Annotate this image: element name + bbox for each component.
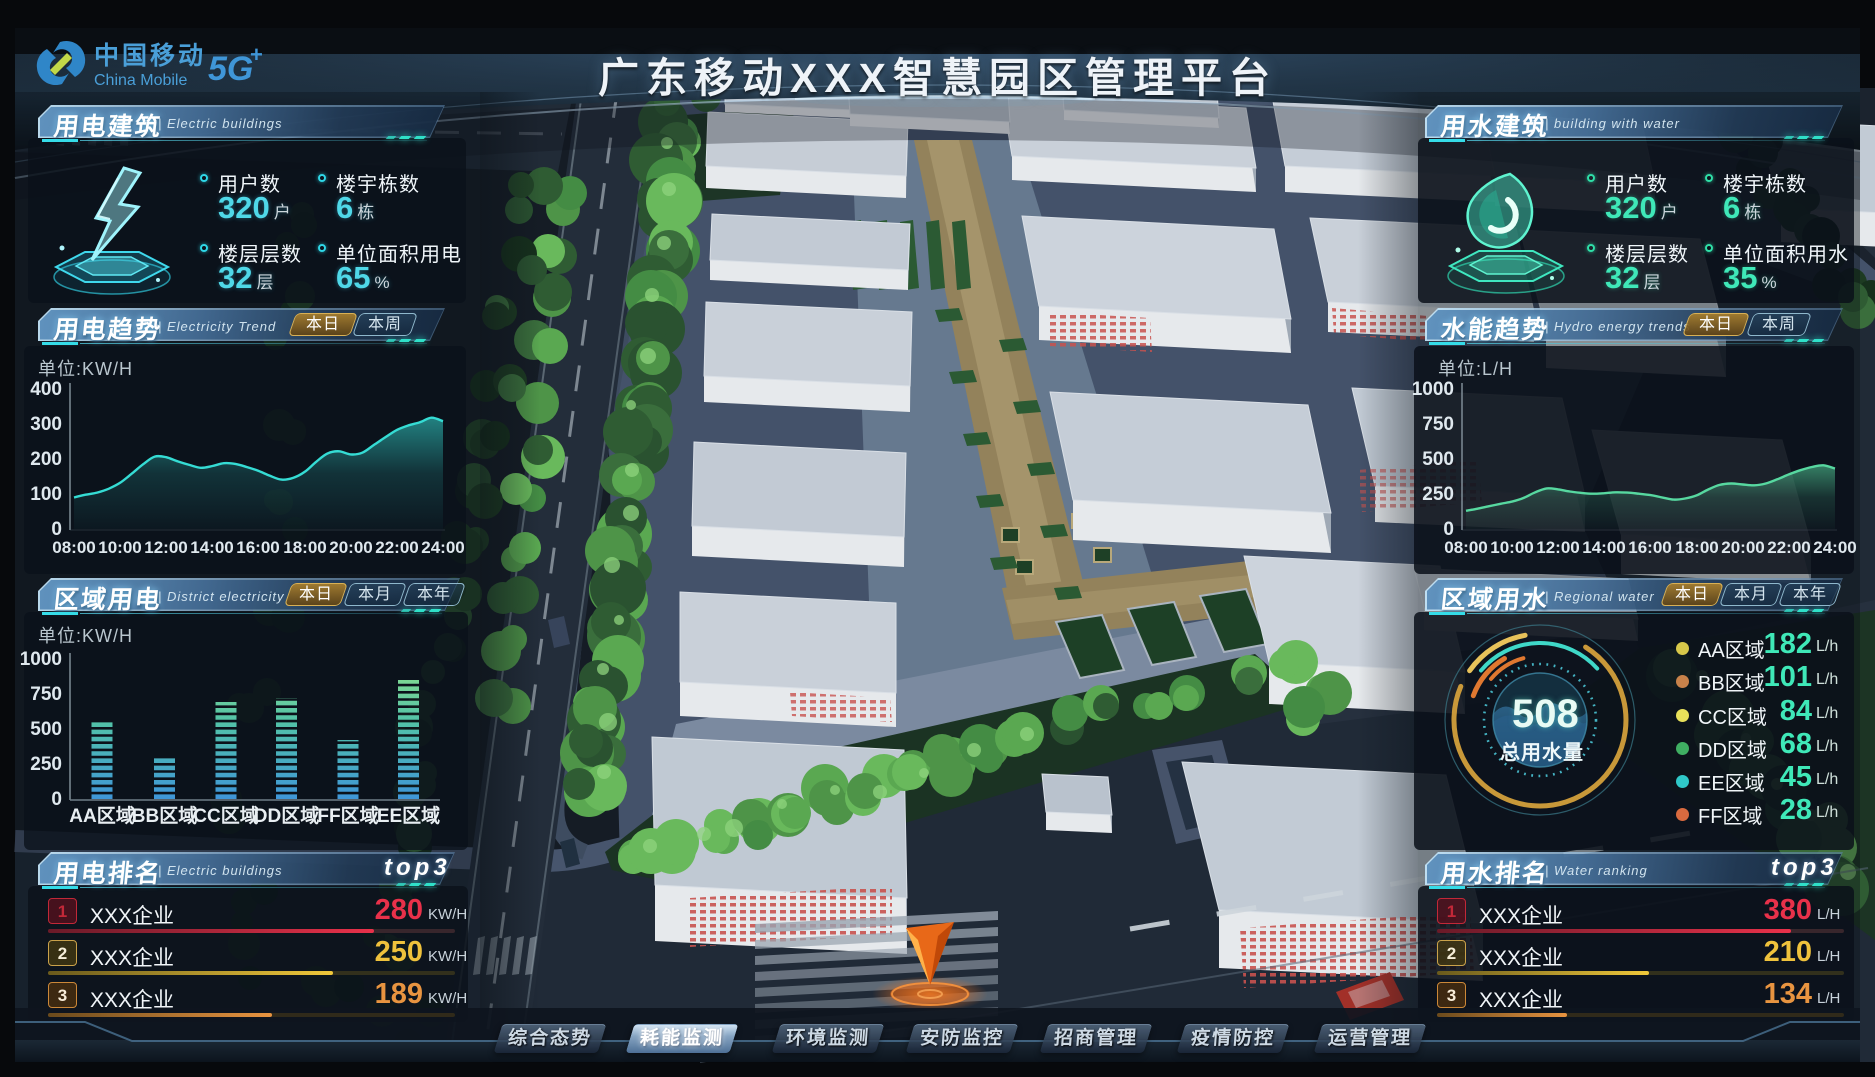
svg-text:中国移动: 中国移动 — [94, 42, 206, 70]
svg-text:+: + — [250, 42, 263, 67]
svg-text:China Mobile: China Mobile — [94, 72, 187, 89]
svg-text:5G: 5G — [208, 50, 253, 88]
